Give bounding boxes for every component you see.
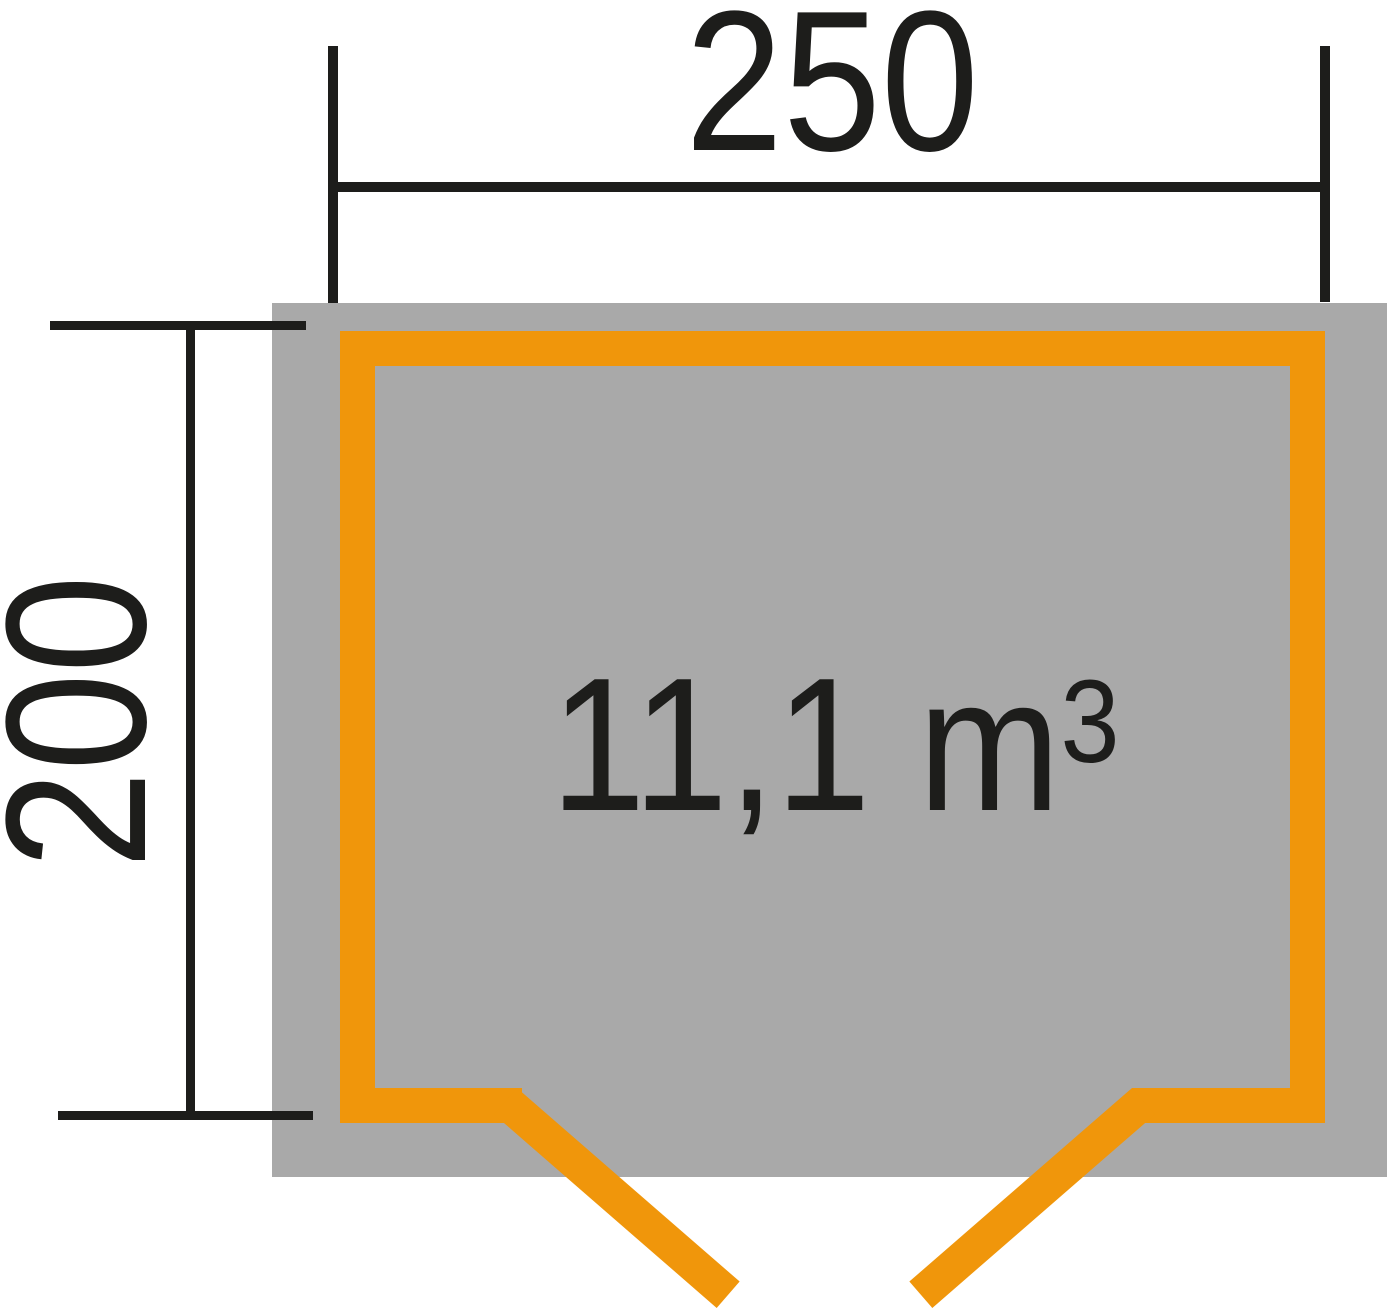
volume-value: 11,1 m bbox=[550, 639, 1060, 851]
width-dimension-tick-right bbox=[1320, 46, 1330, 302]
width-dimension-tick-left bbox=[328, 46, 338, 303]
width-dimension-label: 250 bbox=[394, 0, 1270, 182]
floorplan-diagram: 250 200 11,1 m3 bbox=[0, 0, 1396, 1313]
wall-top bbox=[340, 331, 1325, 366]
volume-superscript: 3 bbox=[1061, 656, 1120, 788]
wall-bottom-right bbox=[1132, 1088, 1325, 1123]
depth-dimension-tick-bottom bbox=[58, 1111, 313, 1120]
wall-bottom-left bbox=[340, 1088, 522, 1123]
depth-dimension-tick-top bbox=[50, 321, 306, 330]
wall-left bbox=[340, 331, 375, 1123]
volume-label: 11,1 m3 bbox=[550, 650, 1119, 840]
depth-dimension-label: 200 bbox=[0, 575, 177, 869]
wall-right bbox=[1290, 331, 1325, 1123]
